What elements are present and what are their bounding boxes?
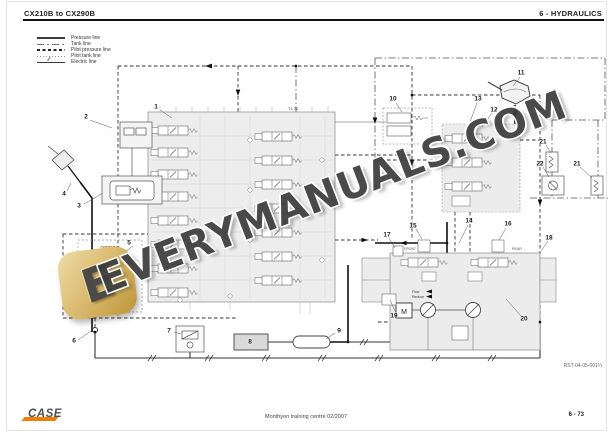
legend-line-sample — [37, 42, 65, 46]
manual-page: CX210B to CX290B 6 - HYDRAULICS Pressure… — [0, 0, 612, 432]
hydraulic-breaker-4 — [48, 146, 80, 182]
case-logo-swoosh — [22, 417, 59, 421]
flow-label-1: Flow — [412, 290, 420, 294]
pump-assembly: M FRONT REAR Flow Reduce — [362, 240, 556, 350]
front-pump-label: FRONT — [404, 247, 417, 251]
line-legend: Pressure line Tank line Pilot pressure l… — [37, 35, 111, 65]
legend-row: Electric line — [37, 59, 111, 65]
solenoid-block-7 — [176, 326, 204, 352]
pilot-filter-21a — [546, 152, 558, 172]
port-label-t1t2: T1 T2 — [288, 106, 299, 111]
controller-8 — [234, 334, 268, 350]
legend-label: Electric line — [71, 59, 97, 65]
accumulator-valve-2 — [120, 122, 152, 176]
legend-line-sample — [37, 60, 65, 64]
valve-3 — [102, 176, 162, 204]
rear-pump-label: REAR — [512, 247, 522, 251]
check-valve-22 — [542, 176, 564, 195]
motor-label: M — [401, 309, 407, 316]
cooler-9 — [293, 336, 330, 348]
pilot-filter-21b — [591, 176, 603, 195]
flow-label-2: Reduce — [412, 295, 424, 299]
legend-line-sample — [37, 54, 65, 58]
legend-line-sample — [37, 36, 65, 40]
case-logo: CASE — [28, 404, 62, 422]
legend-line-sample — [37, 48, 65, 52]
figure-reference: RST-04-05-001¼ — [564, 363, 602, 369]
